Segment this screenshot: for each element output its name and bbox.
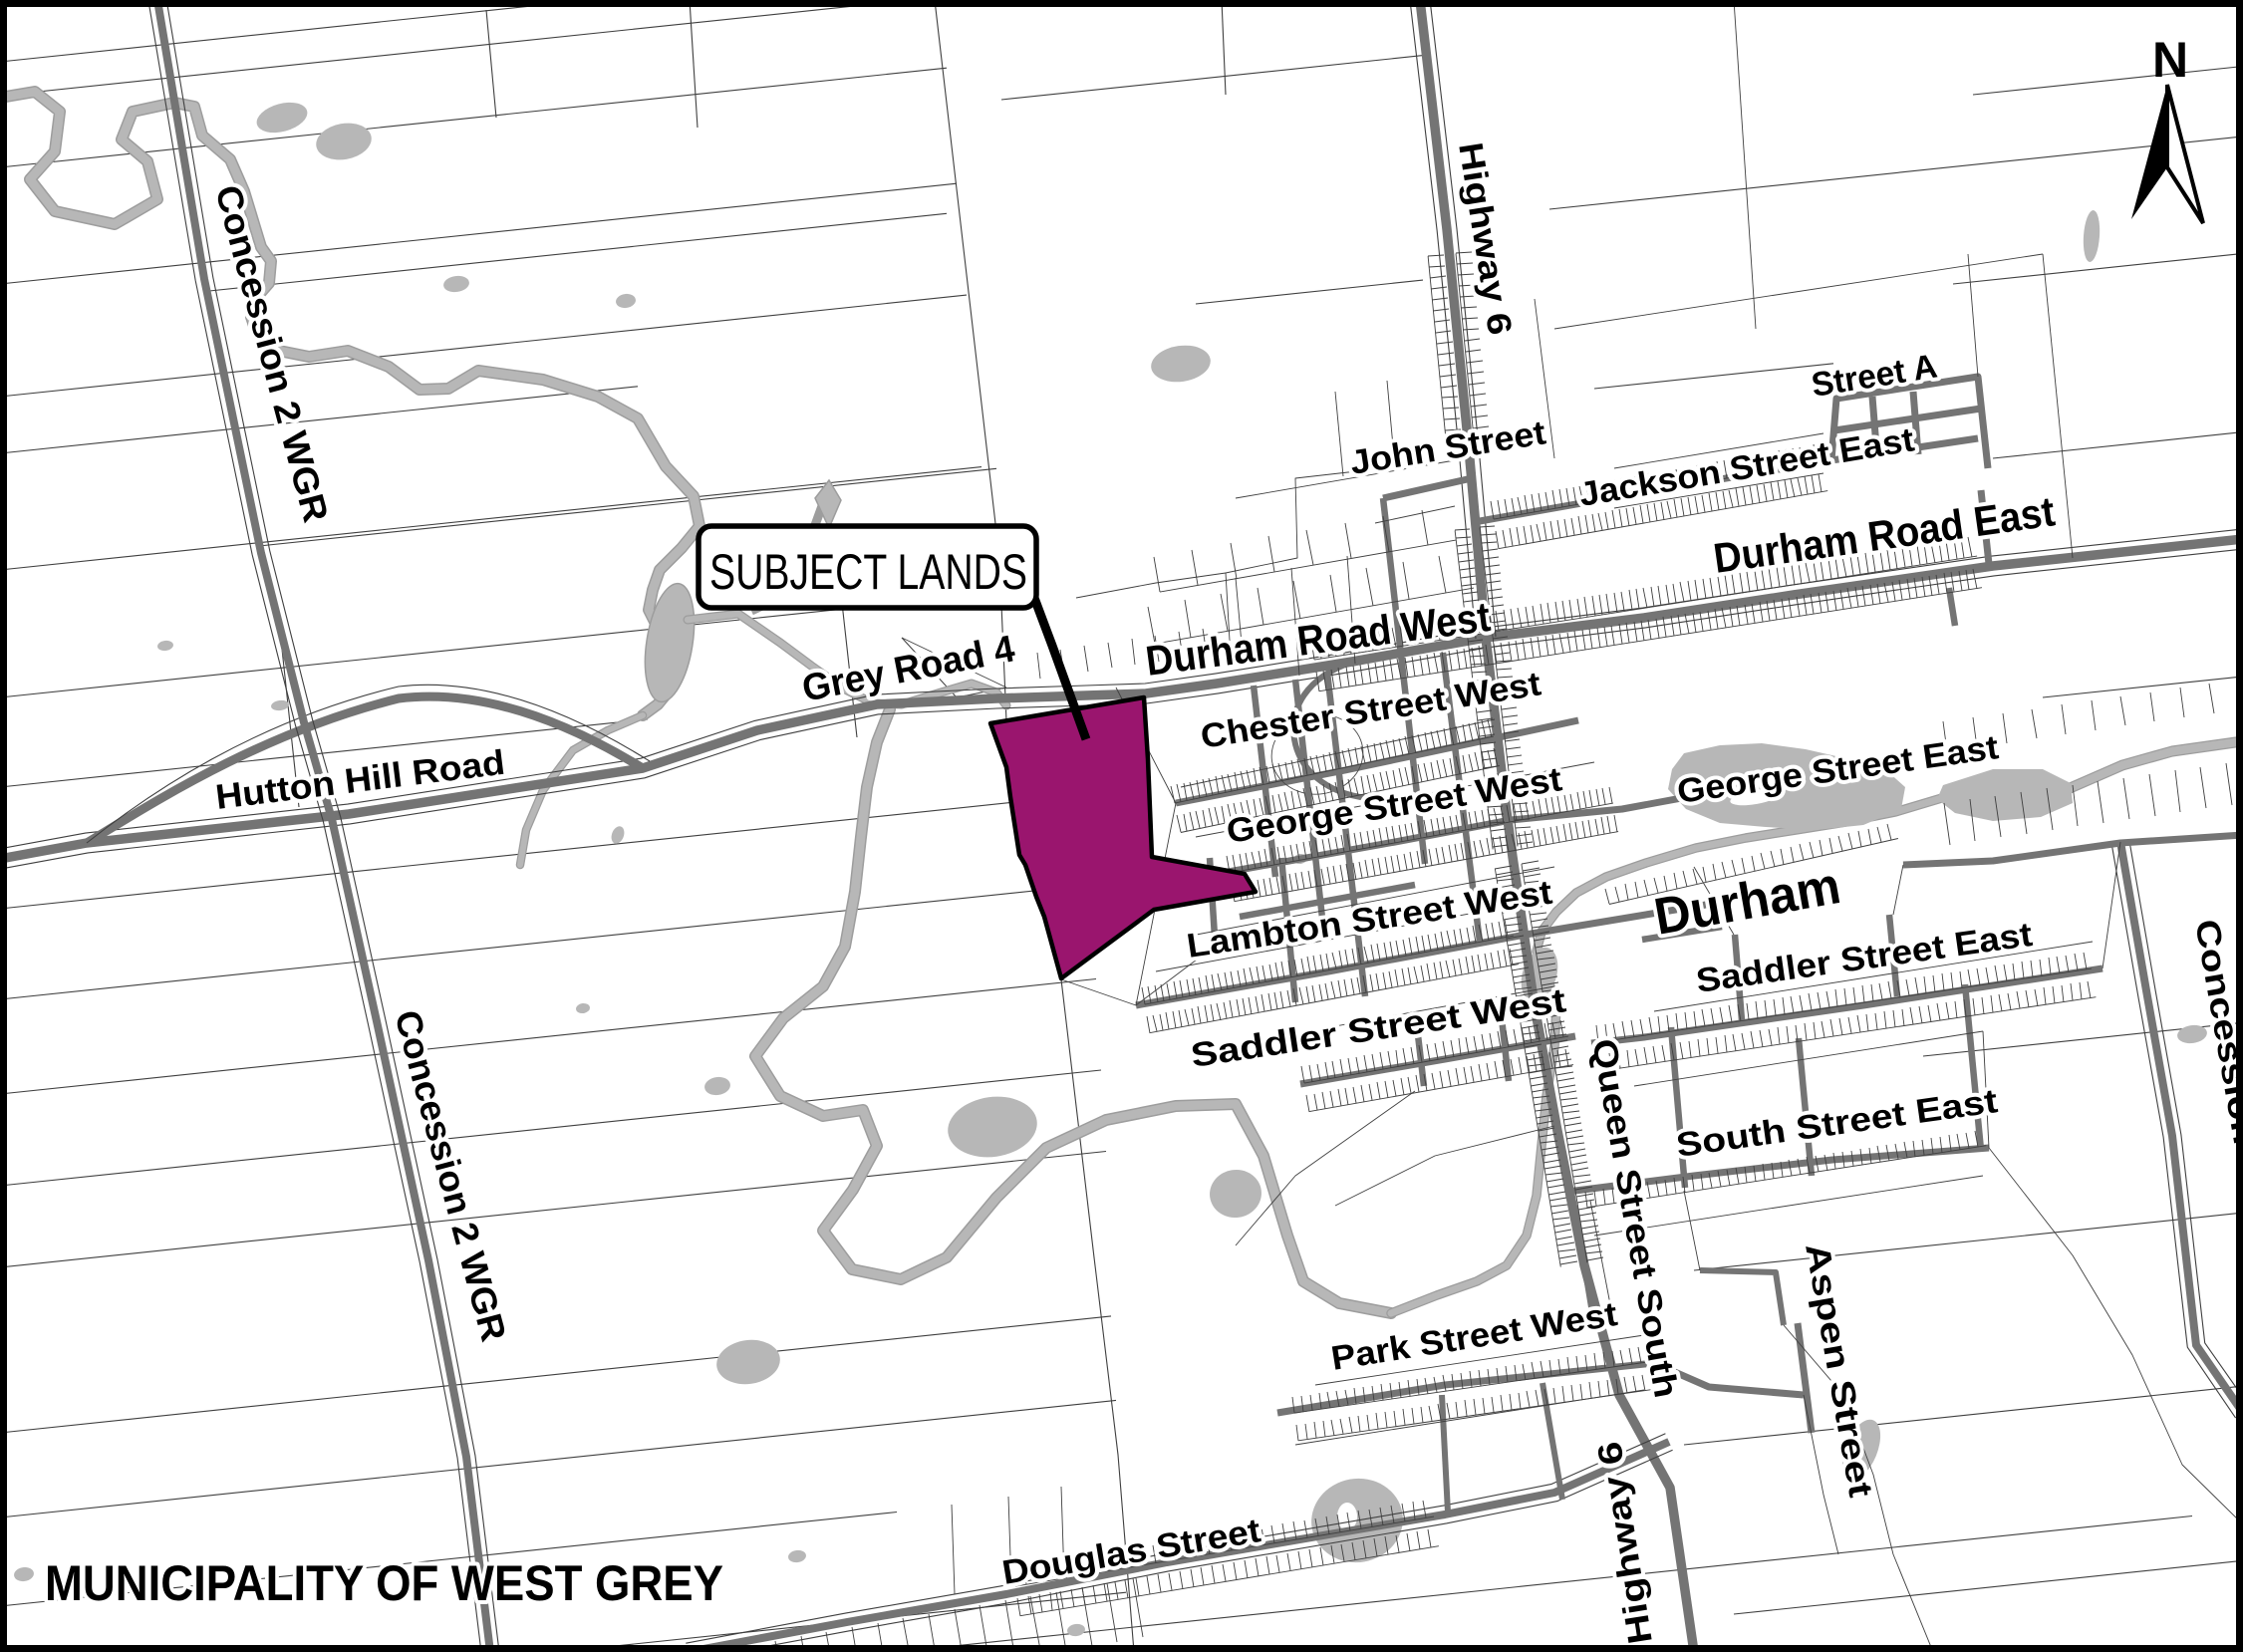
svg-text:N: N: [2152, 32, 2188, 88]
svg-text:MUNICIPALITY OF WEST GREY: MUNICIPALITY OF WEST GREY: [45, 1555, 723, 1611]
svg-text:SUBJECT LANDS: SUBJECT LANDS: [709, 544, 1027, 600]
